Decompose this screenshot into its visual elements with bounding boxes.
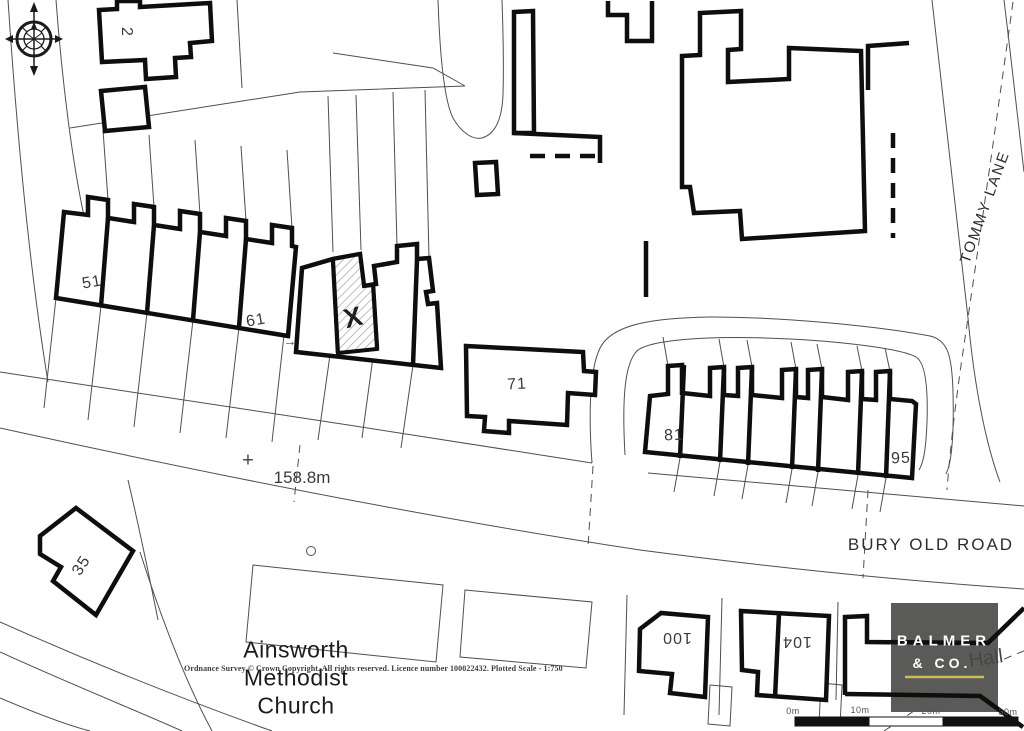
house-number-104: 104 — [782, 632, 812, 650]
scale-label-10m: 10m — [850, 705, 869, 715]
site-plan-drawing — [0, 0, 1024, 731]
scale-label-0m: 0m — [786, 706, 800, 716]
tree-symbol — [307, 547, 316, 556]
logo-name: BALMER — [897, 633, 991, 650]
house-number-81: 81 — [664, 427, 684, 446]
scale-label-20m: 20m — [921, 706, 940, 716]
compass-rose-icon — [5, 2, 63, 76]
house-number-2: 2 — [117, 27, 135, 37]
house-number-95: 95 — [891, 450, 911, 469]
logo-suffix: & CO. — [913, 655, 972, 671]
house-number-71: 71 — [507, 375, 528, 394]
os-attribution-text: Ordnance Survey © Crown Copyright. All r… — [184, 664, 614, 673]
plot-pointer-arrow-icon: → — [284, 334, 297, 349]
scale-label-30m: 30m — [998, 707, 1017, 717]
spot-height-cross: + — [242, 450, 254, 473]
spot-height-value: 158.8m — [274, 468, 331, 488]
buildings-layer — [40, 1, 916, 700]
road-label-bury-old-road: BURY OLD ROAD — [848, 535, 1014, 555]
map-canvas: 2 51 61 X → 71 81 95 35 100 104 Hall TOM… — [0, 0, 1024, 731]
house-number-100: 100 — [662, 628, 692, 646]
church-label-line1: Ainsworth — [243, 637, 348, 664]
house-number-51: 51 — [81, 272, 104, 293]
church-label-line3: Church — [257, 693, 334, 720]
scale-bar — [795, 717, 1018, 726]
house-number-61: 61 — [245, 310, 268, 331]
